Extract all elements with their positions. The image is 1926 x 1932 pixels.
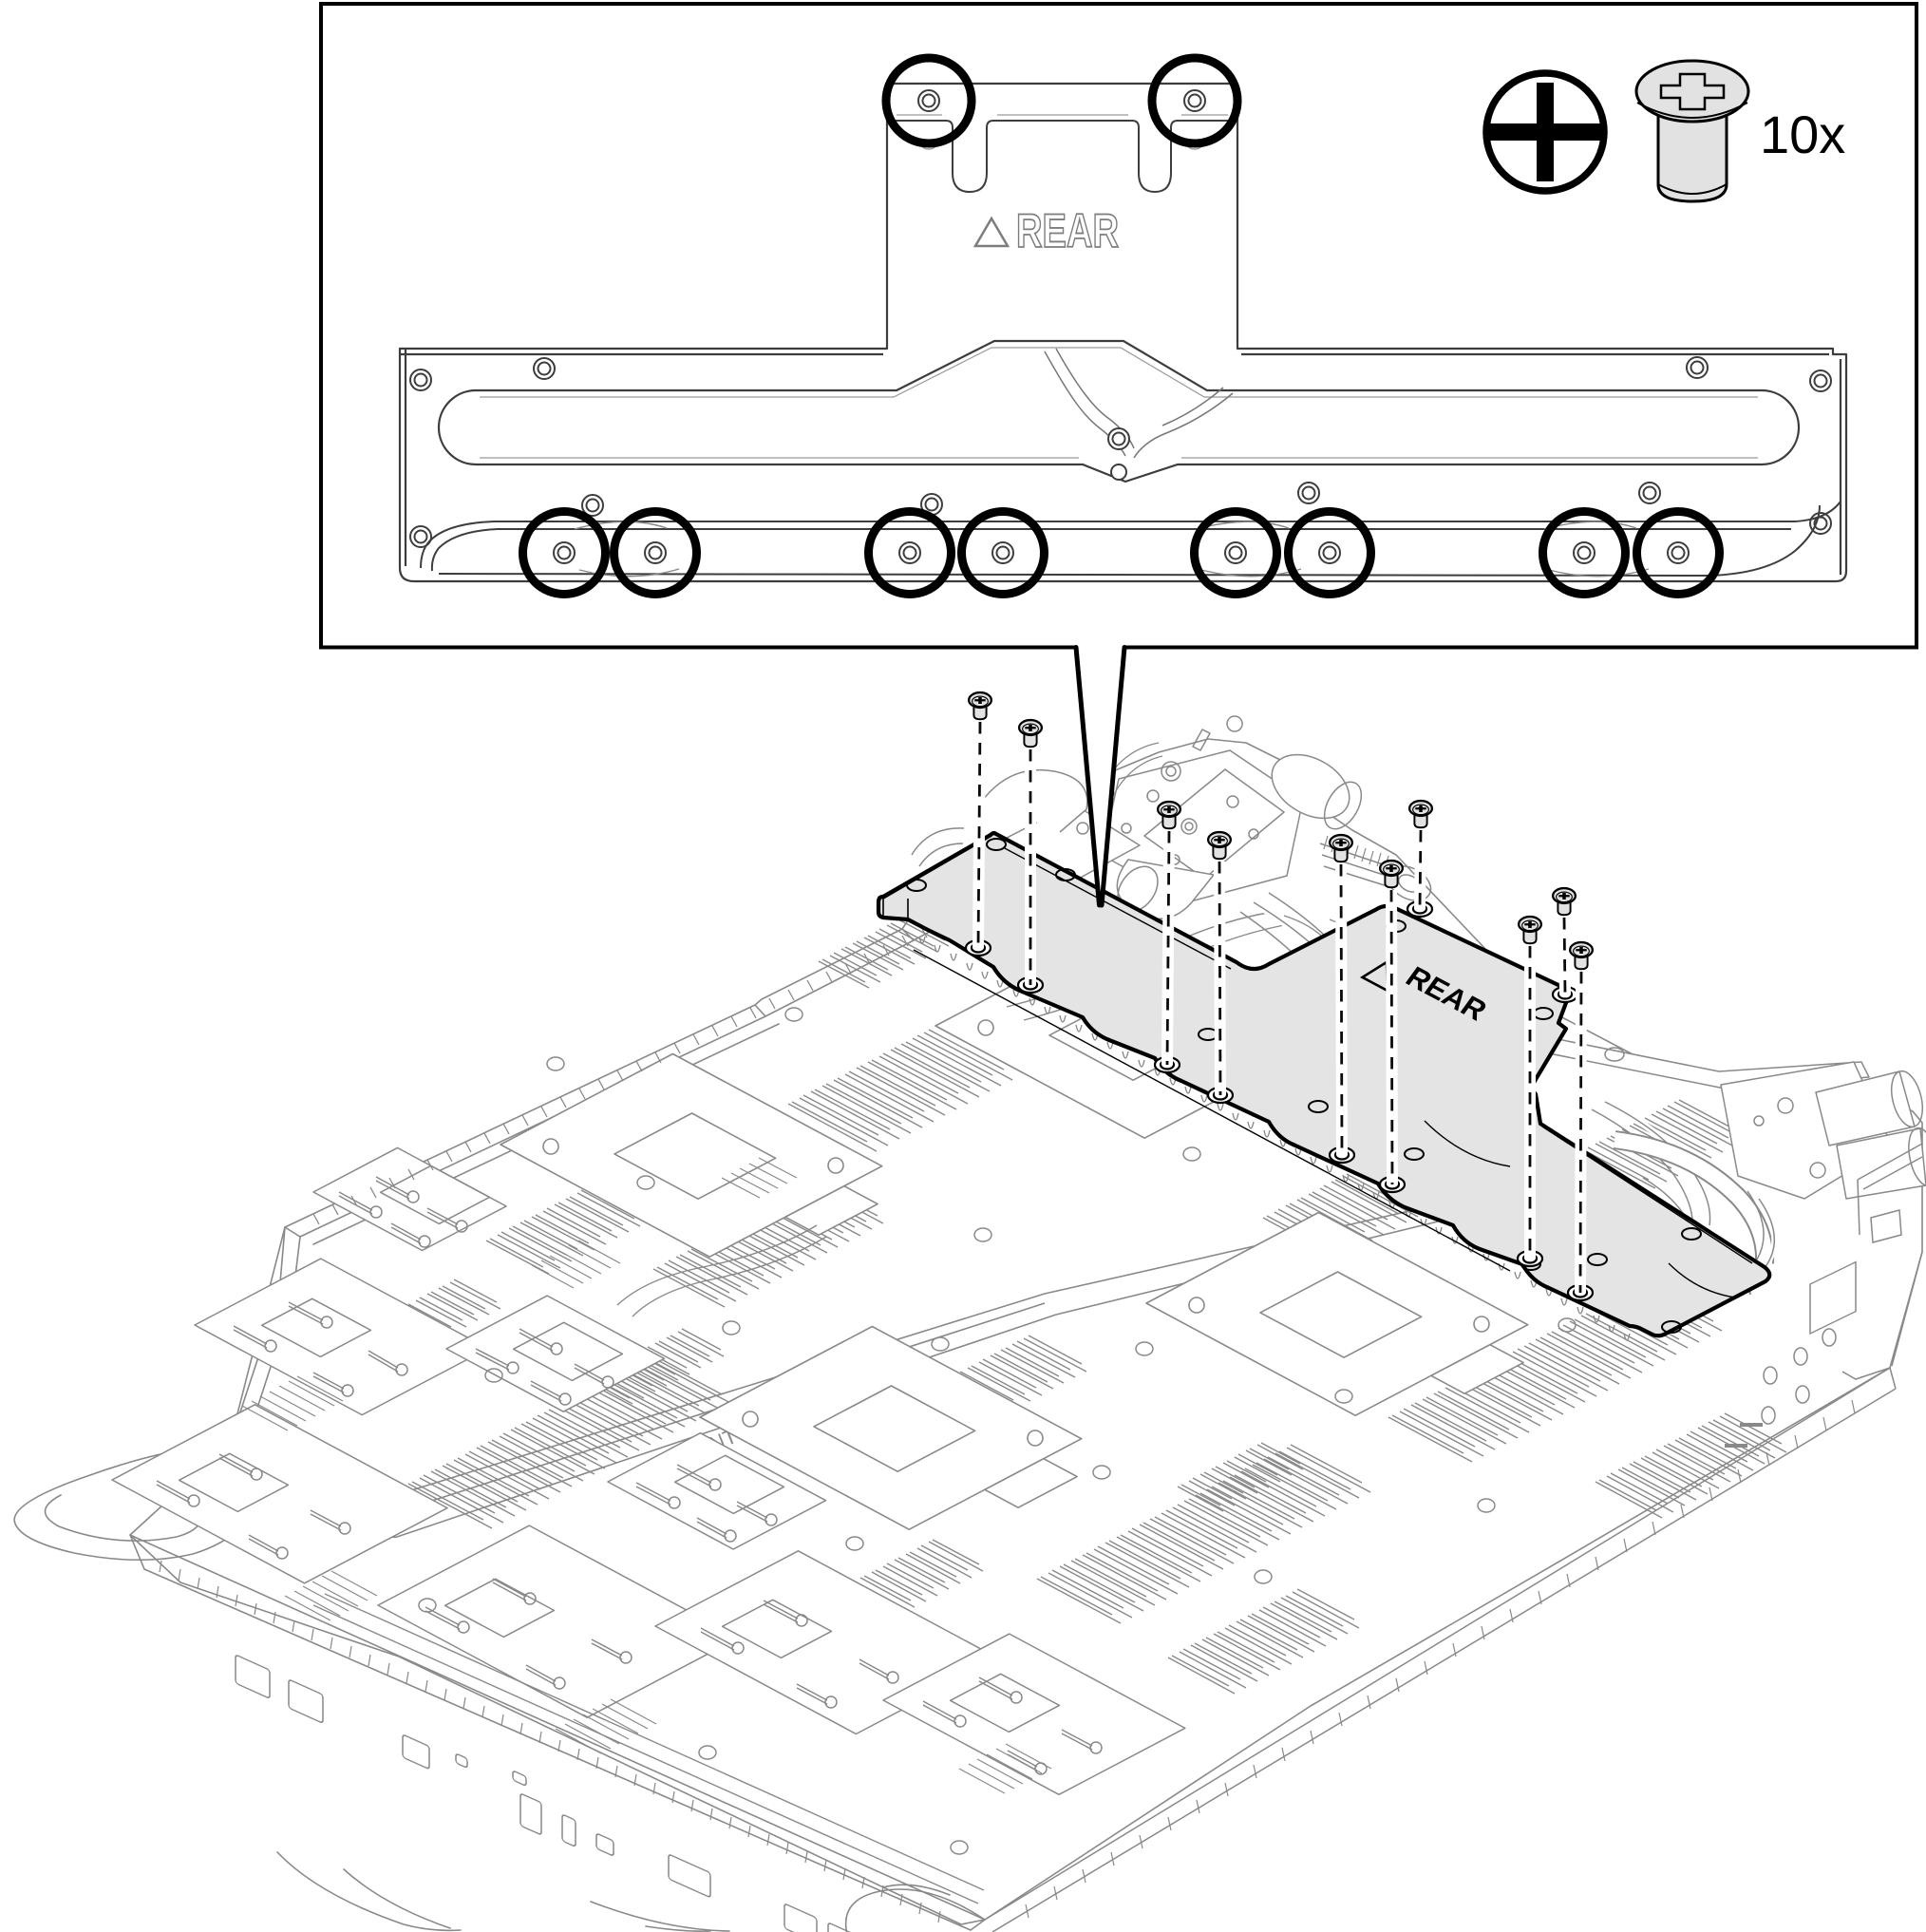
- svg-text:10x: 10x: [1760, 104, 1845, 164]
- svg-text:REAR: REAR: [1016, 204, 1119, 257]
